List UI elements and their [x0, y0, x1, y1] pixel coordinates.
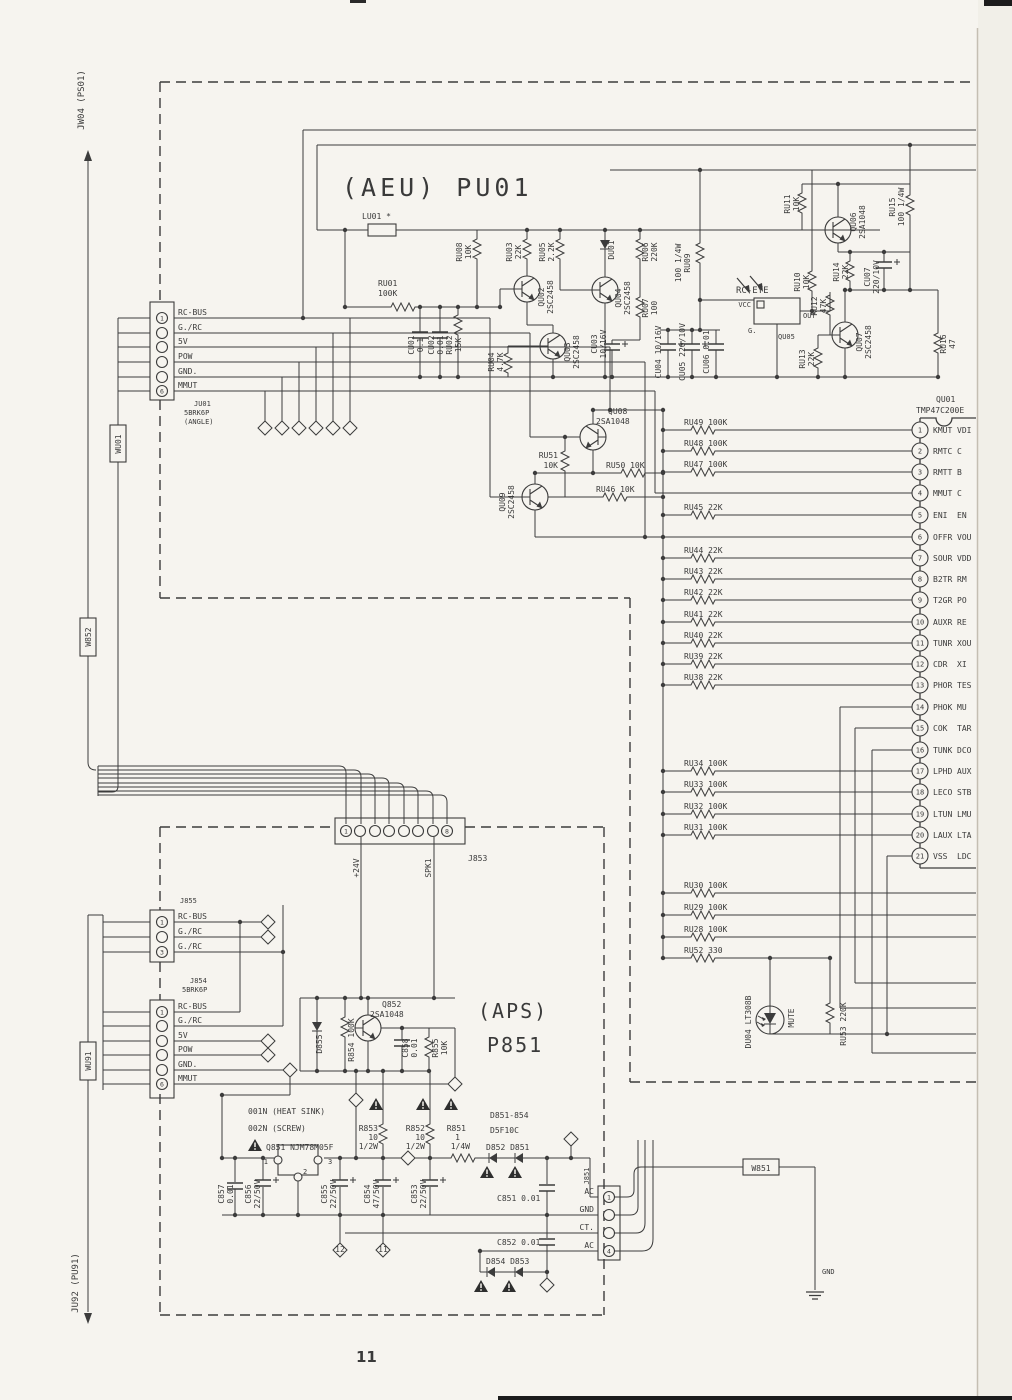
wire-ref-diamond	[401, 1151, 415, 1165]
ic-pin-name: RMTT	[933, 468, 952, 477]
ic-pin-number: 9	[918, 597, 922, 605]
ju01-id: JU01	[194, 400, 211, 408]
ic-pin-number: 20	[916, 832, 924, 840]
junction-dot	[661, 535, 665, 539]
junction-dot	[908, 143, 912, 147]
cu05-label: CU05 220/10V	[678, 323, 687, 381]
ru08-value: 10K	[464, 245, 473, 260]
diode-d853	[512, 1267, 528, 1277]
junction-dot	[456, 375, 460, 379]
wire-ref-diamond	[261, 915, 275, 929]
screw-note: 002N (SCREW)	[248, 1124, 306, 1133]
ladder-resistor-label: RU29 100K	[684, 903, 728, 912]
ladder-resistor	[688, 596, 716, 604]
connector-pin-label: 5V	[178, 337, 188, 346]
ic-pin-name: LECO	[933, 788, 952, 797]
scan-mark-top	[350, 0, 366, 3]
harness-label-ju92: JU92 (PU91)	[71, 1253, 81, 1313]
junction-dot	[301, 316, 305, 320]
junction-dot	[545, 1156, 549, 1160]
connector-pin-label: G./RC	[178, 927, 202, 936]
ladder-resistor-label: RU34 100K	[684, 759, 728, 768]
junction-dot	[220, 1156, 224, 1160]
junction-dot	[661, 449, 665, 453]
junction-dot	[843, 375, 847, 379]
wire-ref-diamond	[258, 421, 272, 435]
wire-ref-diamond	[275, 421, 289, 435]
ic-pin-name: OFFR	[933, 533, 952, 542]
qu08-label: QU08	[608, 407, 627, 416]
junction-dot	[936, 375, 940, 379]
lu01-label: LU01 *	[362, 212, 391, 221]
resistor-ru46	[600, 493, 628, 501]
wire-ref-number: 12	[335, 1245, 345, 1254]
cu07-value: 220/10V	[872, 260, 881, 294]
warning-icon	[508, 1166, 522, 1178]
junction-dot	[428, 1156, 432, 1160]
harness-label-jw04: JW04 (PS01)	[77, 70, 87, 130]
junction-dot	[882, 250, 886, 254]
junction-dot	[661, 428, 665, 432]
qu06-label: QU06	[849, 212, 858, 231]
wire-label-wu91: WU91	[84, 1051, 93, 1070]
ic-pin-number: 2	[918, 448, 922, 456]
junction-dot	[569, 1156, 573, 1160]
connector-pin-label: G./RC	[178, 1016, 202, 1025]
ic-pin-right-name: RM	[957, 575, 967, 584]
ic-pin-name: CDR	[933, 660, 948, 669]
ru14-label: RU14	[832, 262, 841, 281]
ru02-value: 15K	[454, 338, 463, 353]
ic-pin-right-name: LDC	[957, 852, 972, 861]
ru02-label: RU02	[445, 335, 454, 354]
junction-dot	[545, 1270, 549, 1274]
diode-d855	[312, 1020, 322, 1034]
heatsink-note: 001N (HEAT SINK)	[248, 1107, 325, 1116]
ic-pin-right-name: C	[957, 447, 962, 456]
connector-pin	[384, 826, 395, 837]
ic-pin-name: SOUR	[933, 554, 952, 563]
capacitor-c851	[539, 1185, 555, 1191]
qu02-value: 2SC2458	[546, 280, 555, 314]
junction-dot	[338, 1213, 342, 1217]
ic-pin-name: PHOR	[933, 681, 952, 690]
ic-pin-number: 6	[918, 534, 922, 542]
qu04-value: 2SC2458	[623, 281, 632, 315]
connector-pin-label: GND.	[178, 1060, 197, 1069]
ic-pin-right-name: XI	[957, 660, 967, 669]
ladder-resistor	[688, 575, 716, 583]
resistor-ru02	[454, 312, 462, 338]
connector-pin-number: 1	[344, 827, 348, 835]
junction-dot	[661, 683, 665, 687]
junction-dot	[591, 408, 595, 412]
resistor-r853	[379, 1121, 387, 1147]
ladder-resistor-label: RU28 100K	[684, 925, 728, 934]
r854-label: R854 100K	[347, 1018, 356, 1062]
ic-pin-right-name: C	[957, 489, 962, 498]
d854-d853-label: D854 D853	[486, 1257, 530, 1266]
connector-pin	[428, 826, 439, 837]
ru10-label: RU10	[793, 272, 802, 291]
ic-pin-number: 3	[918, 469, 922, 477]
junction-dot	[343, 1069, 347, 1073]
connector-pin-number: 8	[445, 827, 449, 835]
q851-pin3-num: 3	[328, 1158, 332, 1166]
diode-group-label: D851-854	[490, 1111, 529, 1120]
junction-dot	[366, 996, 370, 1000]
ic-pin-right-name: LMU	[957, 810, 972, 819]
junction-dot	[338, 1156, 342, 1160]
resistor-r851	[448, 1154, 476, 1162]
junction-dot	[438, 305, 442, 309]
schematic-page: 1RC-BUSG./RC5VPOWGND.6MMUT1RC-BUSG./RC3G…	[0, 0, 1012, 1400]
c853-label: C853	[410, 1184, 419, 1203]
j853-24v-label: +24V	[352, 858, 361, 877]
ladder-resistor	[688, 788, 716, 796]
d852-d851-label: D852 D851	[486, 1143, 530, 1152]
junction-dot	[551, 375, 555, 379]
connector-pin	[399, 826, 410, 837]
junction-dot	[643, 535, 647, 539]
junction-dot	[661, 641, 665, 645]
ic-pin-number: 17	[916, 768, 924, 776]
qu04-label: QU04	[614, 288, 623, 307]
wire-ref-diamond	[326, 421, 340, 435]
connector-pin-number: 6	[160, 387, 164, 395]
ic-pin-number: 8	[918, 576, 922, 584]
wire-ref-diamond	[540, 1278, 554, 1292]
ju01-type: 5BRK6P	[184, 409, 209, 417]
ic-pin-name: RMTC	[933, 447, 952, 456]
junction-dot	[661, 812, 665, 816]
ic-pin-number: 5	[918, 512, 922, 520]
j853-id: J853	[468, 854, 487, 863]
ic-pin-number: 13	[916, 682, 924, 690]
q851-pin2-num: 2	[303, 1168, 307, 1176]
ic-pin-name: T2GR	[933, 596, 952, 605]
ru04-label: RU04	[487, 352, 496, 371]
junction-dot	[775, 375, 779, 379]
diode-d851	[512, 1153, 528, 1163]
connector-pin-label: MMUT	[178, 1074, 197, 1083]
ru13-value: 22K	[807, 352, 816, 367]
resistor-ru08	[473, 236, 481, 262]
ru01-label: RU01	[378, 279, 397, 288]
ladder-resistor	[688, 660, 716, 668]
junction-dot	[661, 408, 665, 412]
junction-dot	[698, 298, 702, 302]
r853-wattage: 1/2W	[359, 1142, 378, 1151]
ic-pin-name: COK	[933, 724, 948, 733]
connector-pin-number: 1	[607, 1193, 611, 1201]
generated-parts: 1RC-BUSG./RC5VPOWGND.6MMUT1RC-BUSG./RC3G…	[150, 143, 976, 1292]
connector-pin	[157, 932, 168, 943]
ic-pin-name: KMUT	[933, 426, 952, 435]
ic-pin-name: ENI	[933, 511, 948, 520]
ic-pin-right-name: VDD	[957, 554, 972, 563]
ladder-resistor	[688, 831, 716, 839]
qu08-value: 2SA1048	[596, 417, 630, 426]
junction-dot	[661, 769, 665, 773]
qu07-value: 2SC2458	[864, 325, 873, 359]
q851-pin1	[274, 1156, 282, 1164]
junction-dot	[908, 288, 912, 292]
ru08-label: RU08	[455, 242, 464, 261]
r855-value: 10K	[440, 1041, 449, 1056]
ladder-resistor	[688, 447, 716, 455]
mute-led-du04	[756, 1006, 784, 1034]
ladder-resistor	[688, 889, 716, 897]
arrow-up-icon	[84, 150, 92, 161]
ru09-label: RU09	[683, 253, 692, 272]
left-harness-wires	[88, 160, 150, 1312]
r853-value: 10	[368, 1133, 378, 1142]
connector-pin-label: CT.	[580, 1223, 594, 1232]
ic-pin-number: 7	[918, 555, 922, 563]
aeu-top-circuit	[303, 130, 976, 377]
wire-ref-diamond	[343, 421, 357, 435]
c852-label: C852 0.01	[497, 1238, 541, 1247]
rc-eye-window	[757, 301, 764, 308]
junction-dot	[828, 956, 832, 960]
ic-id: QU01	[936, 395, 955, 404]
mute-label: MUTE	[787, 1008, 796, 1027]
warning-icon	[480, 1166, 494, 1178]
ic-pin-name: LAUX	[933, 831, 952, 840]
ic-pin-right-name: B	[957, 468, 962, 477]
junction-dot	[768, 956, 772, 960]
qu03-value: 2SC2458	[572, 335, 581, 369]
aps-title-1: (APS)	[478, 999, 548, 1023]
junction-dot	[343, 305, 347, 309]
schematic-canvas: 1RC-BUSG./RC5VPOWGND.6MMUT1RC-BUSG./RC3G…	[0, 0, 1012, 1400]
connector-pin-number: 1	[160, 918, 164, 926]
ic-pin-number: 21	[916, 853, 924, 861]
connector-pin-number: 1	[160, 314, 164, 322]
ic-pin-name: MMUT	[933, 489, 952, 498]
junction-dot	[296, 1213, 300, 1217]
ru16-label: RU16	[939, 334, 948, 353]
ic-part: TMP47C200E	[916, 406, 964, 415]
ladder-resistor-label: RU31 100K	[684, 823, 728, 832]
q852-label: Q852	[382, 1000, 401, 1009]
qu06-value: 2SA1048	[858, 205, 867, 239]
scan-mark-bottom	[498, 1396, 1012, 1400]
aps-title-2: P851	[487, 1033, 543, 1057]
ladder-resistor-label: RU48 100K	[684, 439, 728, 448]
junction-dot	[315, 1069, 319, 1073]
junction-dot	[836, 182, 840, 186]
wire-ref-diamond	[261, 1048, 275, 1062]
resistor-ru51	[561, 448, 569, 474]
junction-dot	[418, 375, 422, 379]
ic-pin-number: 11	[916, 640, 924, 648]
ic-pin-right-name: RE	[957, 618, 967, 627]
capacitor-c852	[539, 1239, 555, 1245]
junction-dot	[603, 228, 607, 232]
ic-pin-name: PHOK	[933, 703, 952, 712]
lu01-inductor	[368, 224, 396, 236]
ladder-resistor	[688, 511, 716, 519]
aeu-title: (AEU) PU01	[342, 173, 533, 202]
junction-dot	[432, 996, 436, 1000]
j853-spk1-label: SPK1	[424, 858, 433, 877]
c857-label: C857	[217, 1184, 226, 1203]
scan-mark-corner	[984, 0, 1012, 6]
junction-dot	[533, 471, 537, 475]
q852-value: 2SA1048	[370, 1010, 404, 1019]
c858-value: 0.01	[410, 1038, 419, 1057]
page-number: 11	[356, 1348, 377, 1366]
junction-dot	[478, 1249, 482, 1253]
ru14-value: 22K	[841, 265, 850, 280]
connector-pin-label: POW	[178, 352, 193, 361]
connector-pin	[157, 1050, 168, 1061]
wire-ref-number: 11	[378, 1245, 388, 1254]
q851-pin1-num: 1	[264, 1158, 268, 1166]
wire-ref-diamond	[283, 1063, 297, 1077]
connector-pin-label: RC-BUS	[178, 1002, 207, 1011]
connector-pin-label: 5V	[178, 1031, 188, 1040]
ru51-value: 10K	[544, 461, 559, 470]
ladder-resistor-label: RU49 100K	[684, 418, 728, 427]
ladder-resistor-label: RU39 22K	[684, 652, 723, 661]
ru11-label: RU11	[783, 194, 792, 213]
qu02-label: QU02	[537, 287, 546, 306]
resistor-ru53	[826, 1000, 834, 1026]
wire-ref-diamond	[448, 1077, 462, 1091]
ru07-label: RU07	[641, 298, 650, 317]
ladder-resistor-label: RU40 22K	[684, 631, 723, 640]
ic-pin-name: LTUN	[933, 810, 952, 819]
connector-pin-label: GND.	[178, 367, 197, 376]
ic-pin-number: 4	[918, 490, 922, 498]
ic-pin-name: B2TR	[933, 575, 952, 584]
gnd-label: GND	[822, 1268, 835, 1276]
cu04-label: CU04 10/16V	[654, 325, 663, 378]
connector-pin-label: G./RC	[178, 942, 202, 951]
ladder-resistor	[688, 954, 716, 962]
junction-dot	[359, 996, 363, 1000]
wire-network	[88, 130, 976, 1312]
ladder-resistor-label: RU52 330	[684, 946, 723, 955]
junction-dot	[661, 833, 665, 837]
junction-dot	[220, 1093, 224, 1097]
ru12-label: RU12	[810, 296, 819, 315]
warning-icon	[474, 1280, 488, 1292]
connector-pin	[413, 826, 424, 837]
ladder-resistor	[688, 933, 716, 941]
ladder-resistor	[688, 639, 716, 647]
junction-dot	[498, 305, 502, 309]
ru06-label: RU06	[641, 242, 650, 261]
connector-pin	[157, 1065, 168, 1076]
junction-dot	[438, 375, 442, 379]
connector-pin-label: MMUT	[178, 381, 197, 390]
ic-pin-name: AUXR	[933, 618, 952, 627]
ic-pin-right-name: VOU	[957, 533, 972, 542]
ru10-value: 10K	[802, 275, 811, 290]
connector-pin	[157, 1036, 168, 1047]
ru53-label: RU53 220K	[839, 1002, 848, 1046]
ru04-value: 4.7K	[496, 352, 505, 371]
du01-label: DU01	[607, 240, 616, 259]
ladder-resistor	[688, 911, 716, 919]
ju01-note: (ANGLE)	[184, 418, 214, 426]
junction-dot	[843, 288, 847, 292]
wire-ref-diamond	[292, 421, 306, 435]
warning-icon	[444, 1098, 458, 1110]
cu07-label: CU07	[863, 267, 872, 286]
wire-ref-diamond	[261, 1034, 275, 1048]
ru12-value: 47K	[819, 299, 828, 314]
ic-pin-right-name: MU	[957, 703, 967, 712]
ic-pin-right-name: LTA	[957, 831, 972, 840]
ladder-resistor	[688, 618, 716, 626]
ru05-value: 2.2K	[547, 242, 556, 261]
resistor-ru03	[523, 236, 531, 262]
vcc-label: VCC	[738, 301, 751, 309]
ru50-label: RU50 10K	[606, 461, 645, 470]
junction-dot	[563, 435, 567, 439]
ladder-resistor-label: RU38 22K	[684, 673, 723, 682]
ic-pin-number: 14	[916, 704, 924, 712]
ladder-resistor-label: RU42 22K	[684, 588, 723, 597]
junction-dot	[261, 1213, 265, 1217]
cu02-value: 0.01	[436, 335, 445, 354]
junction-dot	[816, 375, 820, 379]
junction-dot	[418, 305, 422, 309]
r851-label: R851	[447, 1124, 466, 1133]
junction-dot	[661, 662, 665, 666]
wire-ref-diamond	[564, 1132, 578, 1146]
junction-dot	[545, 1213, 549, 1217]
r852-value: 10	[415, 1133, 425, 1142]
ic-pin-number: 16	[916, 747, 924, 755]
ru15-value: 100 1/4W	[897, 188, 906, 227]
c855-value: 22/50V	[329, 1179, 338, 1208]
connector-pin	[157, 372, 168, 383]
ru03-value: 22K	[514, 245, 523, 260]
junction-dot	[456, 305, 460, 309]
ic-pin-number: 15	[916, 725, 924, 733]
connector-pin-number: 6	[160, 1080, 164, 1088]
junction-dot	[591, 471, 595, 475]
junction-dot	[882, 288, 886, 292]
cu01-label: CU01	[407, 335, 416, 354]
wire-label-w851: W851	[751, 1164, 770, 1173]
connector-pin	[157, 328, 168, 339]
junction-dot	[525, 228, 529, 232]
ic-pin-right-name: EN	[957, 511, 967, 520]
ru46-label: RU46 10K	[596, 485, 635, 494]
junction-dot	[690, 375, 694, 379]
r852-wattage: 1/2W	[406, 1142, 425, 1151]
ru07-value: 100	[650, 301, 659, 316]
ru15-label: RU15	[888, 197, 897, 216]
connector-pin	[157, 1021, 168, 1032]
junction-dot	[661, 913, 665, 917]
junction-dot	[603, 375, 607, 379]
cu06-label: CU06 0.01	[702, 330, 711, 374]
q851-label: Q851 NJM78M05F	[266, 1143, 334, 1152]
junction-dot	[343, 228, 347, 232]
resistor-ru04	[504, 350, 512, 376]
junction-dot	[661, 956, 665, 960]
ru13-label: RU13	[798, 349, 807, 368]
ic-pin-number: 18	[916, 789, 924, 797]
